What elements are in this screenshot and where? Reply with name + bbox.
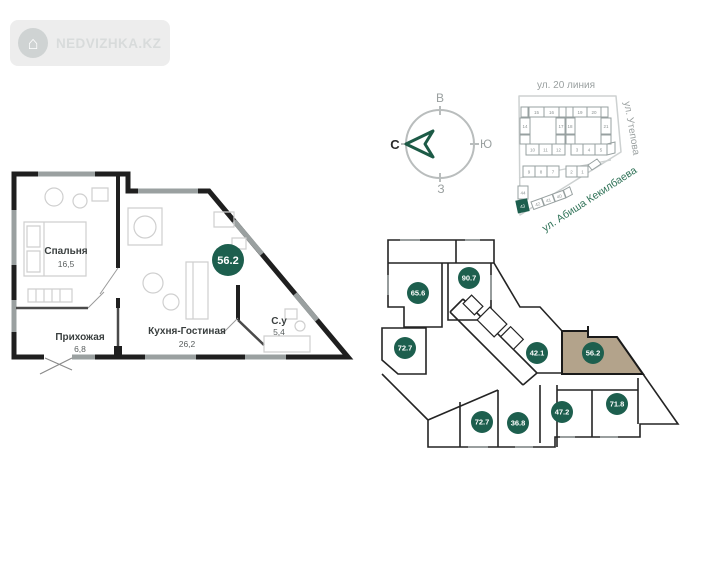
unit-area: 47.2 xyxy=(555,408,570,417)
unit-area: 90.7 xyxy=(462,274,477,283)
compass-north-arrow-icon xyxy=(406,131,433,157)
block-label: 18 xyxy=(567,124,573,129)
block-label: 17 xyxy=(558,124,564,129)
unit-area: 36.8 xyxy=(511,419,526,428)
compass-north: С xyxy=(390,137,400,152)
block-label: 14 xyxy=(522,124,528,129)
apartment-plan: Спальня 16,5 Прихожая 6,8 Кухня-Гостиная… xyxy=(14,174,348,374)
compass-west: З xyxy=(437,182,444,196)
compass: В Ю З С xyxy=(390,91,492,196)
building-walls xyxy=(382,240,678,447)
room-label-bedroom: Спальня xyxy=(44,246,87,257)
street-label-right: ул. Утепова xyxy=(621,101,641,157)
core-room xyxy=(501,327,524,350)
site-map: 15 16 14 17 19 20 18 21 10 11 12 3 4 5 9… xyxy=(516,80,642,235)
room-area-hall: 6,8 xyxy=(74,344,86,354)
total-area-value: 56.2 xyxy=(217,255,238,267)
compass-east: В xyxy=(436,91,444,105)
block-label: 10 xyxy=(530,148,536,153)
block-label: 15 xyxy=(534,110,540,115)
highlighted-site-block: 43 xyxy=(516,199,529,213)
plan-canvas: Спальня 16,5 Прихожая 6,8 Кухня-Гостиная… xyxy=(0,0,720,568)
unit-area: 65.6 xyxy=(411,289,426,298)
unit-area: 42.1 xyxy=(530,349,545,358)
unit-area: 72.7 xyxy=(475,418,490,427)
block-label: 11 xyxy=(543,148,548,153)
block-label: 21 xyxy=(603,124,609,129)
unit-area: 71.8 xyxy=(610,400,625,409)
block-label: 19 xyxy=(577,110,583,115)
block-label: 16 xyxy=(549,110,555,115)
room-label-kitchen: Кухня-Гостиная xyxy=(148,326,226,337)
room-area-kitchen: 26,2 xyxy=(179,339,196,349)
building-floor-plan: 65.6 90.7 72.7 42.1 56.2 72.7 36.8 47.2 … xyxy=(382,240,678,447)
unit-area-highlighted: 56.2 xyxy=(586,349,601,358)
room-area-bedroom: 16,5 xyxy=(58,259,75,269)
block-label: 20 xyxy=(591,110,597,115)
unit-area: 72.7 xyxy=(398,344,413,353)
compass-south: Ю xyxy=(480,137,492,151)
room-label-bath: С.у xyxy=(271,316,287,327)
block-label: 12 xyxy=(556,148,562,153)
interior-wall-block xyxy=(114,346,122,357)
street-label-top: ул. 20 линия xyxy=(537,80,595,91)
room-area-bath: 5,4 xyxy=(273,327,285,337)
block-label: 44 xyxy=(520,191,526,196)
room-label-hall: Прихожая xyxy=(55,332,105,343)
